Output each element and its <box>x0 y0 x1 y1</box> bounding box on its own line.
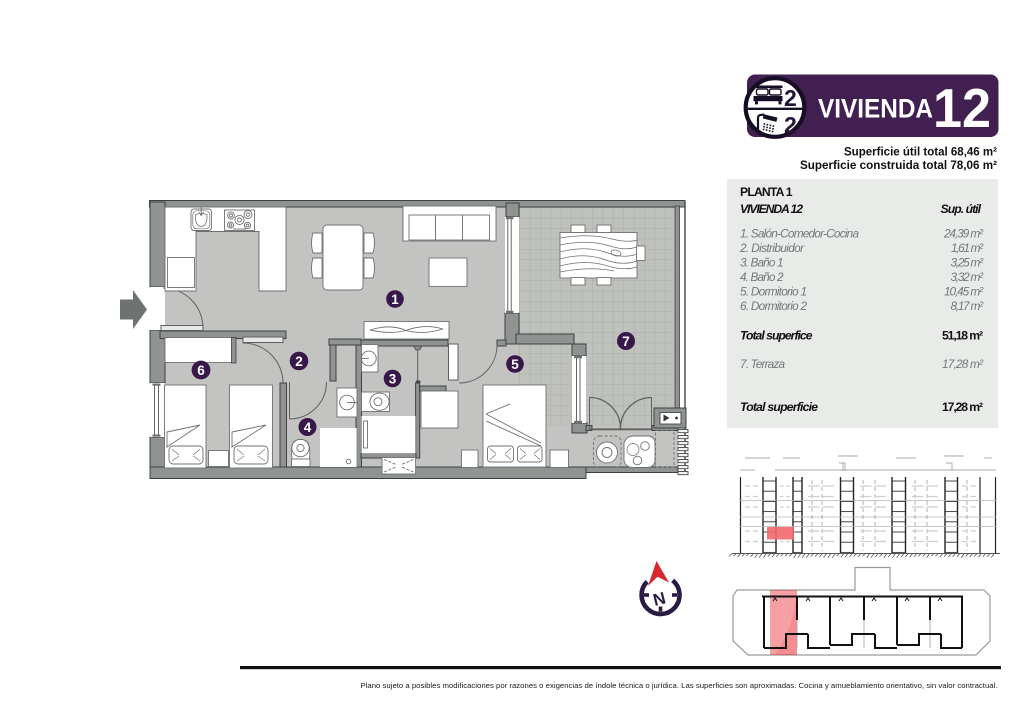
svg-text:4: 4 <box>304 420 312 435</box>
svg-text:6. Dormitorio 2: 6. Dormitorio 2 <box>740 299 807 313</box>
svg-text:17,28 m²: 17,28 m² <box>942 400 983 414</box>
svg-text:Plano sujeto a posibles modifi: Plano sujeto a posibles modificaciones p… <box>361 681 998 690</box>
svg-text:5. Dormitorio 1: 5. Dormitorio 1 <box>740 285 807 299</box>
svg-text:4. Baño 2: 4. Baño 2 <box>740 270 784 284</box>
svg-text:2: 2 <box>295 354 303 369</box>
svg-text:17,28 m²: 17,28 m² <box>942 357 984 371</box>
svg-text:Total superficie: Total superficie <box>740 400 818 414</box>
svg-text:1. Salón-Comedor-Cocina: 1. Salón-Comedor-Cocina <box>740 227 859 241</box>
svg-text:Total superfice: Total superfice <box>740 329 813 343</box>
svg-text:8,17 m²: 8,17 m² <box>951 299 985 313</box>
svg-text:N: N <box>651 588 668 609</box>
svg-text:3. Baño 1: 3. Baño 1 <box>740 256 784 270</box>
svg-text:3,25 m²: 3,25 m² <box>951 256 985 270</box>
svg-text:2: 2 <box>784 112 797 138</box>
svg-text:3,32 m²: 3,32 m² <box>951 270 985 284</box>
svg-text:24,39 m²: 24,39 m² <box>943 227 984 241</box>
svg-text:51,18 m²: 51,18 m² <box>942 329 983 343</box>
svg-text:6: 6 <box>197 363 205 378</box>
svg-text:VIVIENDA 12: VIVIENDA 12 <box>740 202 803 216</box>
svg-text:1,61 m²: 1,61 m² <box>951 241 984 255</box>
svg-text:2: 2 <box>784 85 797 111</box>
svg-text:Superficie útil total 68,46 m²: Superficie útil total 68,46 m² <box>844 145 997 159</box>
svg-text:3: 3 <box>389 371 397 386</box>
svg-text:PLANTA 1: PLANTA 1 <box>740 185 793 199</box>
svg-text:VIVIENDA: VIVIENDA <box>818 93 933 123</box>
svg-text:1: 1 <box>391 292 399 307</box>
svg-text:10,45 m²: 10,45 m² <box>944 285 984 299</box>
svg-text:Sup. útil: Sup. útil <box>941 202 982 216</box>
svg-text:12: 12 <box>933 77 991 139</box>
svg-text:7. Terraza: 7. Terraza <box>740 357 785 371</box>
svg-text:Superficie construida total 78: Superficie construida total 78,06 m² <box>800 158 997 172</box>
svg-text:7: 7 <box>622 334 630 349</box>
svg-text:2. Distribuidor: 2. Distribuidor <box>739 241 805 255</box>
svg-text:5: 5 <box>511 357 519 372</box>
